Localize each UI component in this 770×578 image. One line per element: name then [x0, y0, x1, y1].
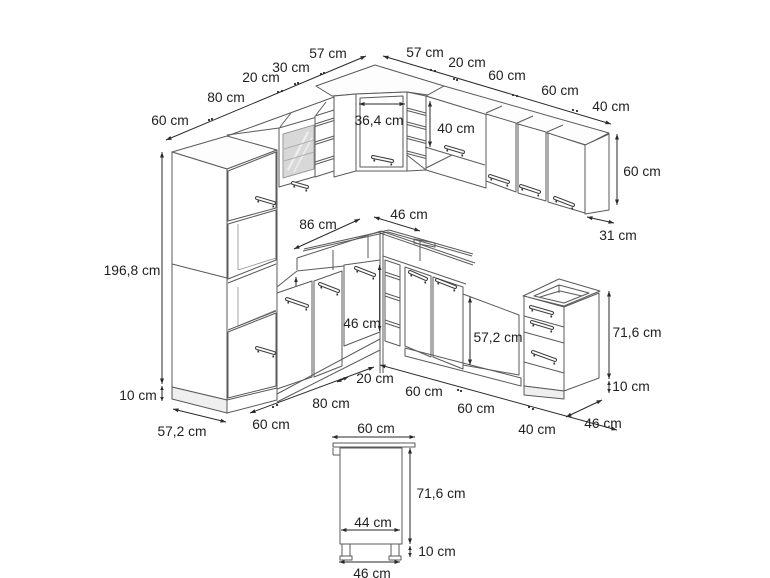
svg-text:57,2 cm: 57,2 cm	[157, 424, 206, 439]
svg-text:44 cm: 44 cm	[354, 515, 392, 530]
svg-text:86 cm: 86 cm	[299, 217, 337, 232]
svg-text:10 cm: 10 cm	[612, 379, 650, 394]
svg-text:60 cm: 60 cm	[151, 113, 189, 128]
svg-text:46 cm: 46 cm	[584, 416, 622, 431]
svg-text:71,6 cm: 71,6 cm	[612, 325, 661, 340]
svg-text:80 cm: 80 cm	[312, 396, 350, 411]
svg-text:60 cm: 60 cm	[357, 421, 395, 436]
svg-text:80 cm: 80 cm	[207, 90, 245, 105]
svg-text:10 cm: 10 cm	[119, 388, 157, 403]
svg-text:60 cm: 60 cm	[457, 401, 495, 416]
svg-text:57 cm: 57 cm	[309, 46, 347, 61]
svg-text:20 cm: 20 cm	[356, 371, 394, 386]
svg-text:71,6 cm: 71,6 cm	[416, 486, 465, 501]
svg-text:60 cm: 60 cm	[488, 68, 526, 83]
svg-text:40 cm: 40 cm	[437, 121, 475, 136]
svg-text:60 cm: 60 cm	[541, 83, 579, 98]
svg-text:36,4 cm: 36,4 cm	[354, 113, 403, 128]
svg-text:46 cm: 46 cm	[343, 316, 381, 331]
svg-text:46 cm: 46 cm	[390, 207, 428, 222]
svg-text:20 cm: 20 cm	[448, 55, 486, 70]
svg-text:46 cm: 46 cm	[353, 566, 391, 578]
svg-text:10 cm: 10 cm	[418, 544, 456, 559]
svg-text:40 cm: 40 cm	[518, 422, 556, 437]
svg-text:31 cm: 31 cm	[599, 228, 637, 243]
svg-text:57 cm: 57 cm	[406, 45, 444, 60]
svg-text:196,8 cm: 196,8 cm	[104, 263, 161, 278]
svg-text:57,2 cm: 57,2 cm	[473, 330, 522, 345]
svg-text:40 cm: 40 cm	[592, 99, 630, 114]
svg-text:60 cm: 60 cm	[252, 417, 290, 432]
svg-text:60 cm: 60 cm	[623, 164, 661, 179]
svg-text:30 cm: 30 cm	[272, 60, 310, 75]
svg-text:60 cm: 60 cm	[405, 384, 443, 399]
